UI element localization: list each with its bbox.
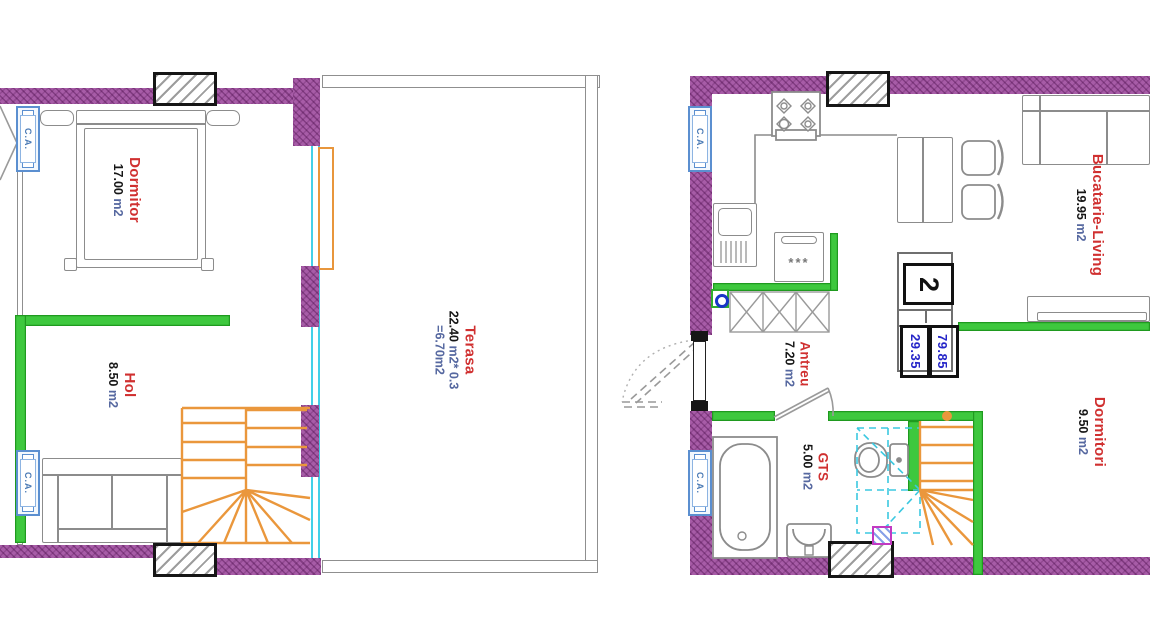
dining-table-divider: [922, 137, 924, 223]
apartment-number: 2: [913, 276, 944, 291]
toilet: [855, 443, 908, 477]
bathroom-sink: [787, 524, 831, 557]
nightstand: [206, 110, 240, 126]
room-label-dormitor: Dormitor 17.00 m2: [111, 157, 143, 223]
wall-green: [712, 411, 775, 421]
badge-area-secondary: 29.35: [909, 334, 924, 369]
radiator-label: C.A.: [0, 473, 59, 493]
chimney-shaft: [828, 541, 894, 578]
wall-segment: [0, 88, 302, 104]
room-label-bucatarie: Bucatarie-Living 19.95 m2: [1074, 154, 1106, 276]
apartment-badge: 2 29.35 79.85: [897, 252, 953, 372]
room-name: Dormitori: [1091, 397, 1109, 467]
room-label-gts: GTS 5.00 m2: [800, 444, 831, 490]
radiator-label: C.A.: [669, 129, 731, 149]
room-area: 9.50: [1077, 409, 1091, 433]
wall-pier: [301, 405, 319, 477]
chimney-shaft: [153, 543, 217, 577]
wall-green: [958, 322, 1150, 331]
stairs: [182, 408, 310, 543]
bed-leg: [201, 258, 214, 271]
chimney-shaft: [826, 71, 890, 107]
wall-segment: [690, 557, 1150, 575]
terasa-wall-right: [585, 75, 598, 573]
room-label-dormitori: Dormitori 9.50 m2: [1076, 397, 1108, 467]
stairs: [920, 411, 973, 545]
sofa-armrest-line: [1039, 95, 1041, 165]
entrance-door-swing: [622, 340, 699, 407]
room-area-unit: m2: [112, 198, 126, 216]
kitchen-counter-line: [755, 135, 897, 203]
wall-green: [908, 421, 920, 491]
room-area-unit: m2: [1075, 223, 1089, 241]
nightstand: [40, 110, 74, 126]
room-label-antreu: Antreu 7.20 m2: [782, 341, 813, 387]
apartment-number-box: 2: [903, 263, 954, 305]
gas-point-ring: [715, 294, 729, 308]
wall-segment: [293, 78, 320, 146]
room-label-hol: Hol 8.50 m2: [106, 362, 138, 408]
room-area: 22.40: [447, 311, 461, 342]
door-frame: [691, 331, 708, 341]
badge-divider: [925, 309, 927, 323]
room-area-unit: m2* 0.3: [447, 345, 461, 389]
bed-headboard-line: [76, 123, 206, 125]
dishwasher-marks: ***: [774, 246, 824, 278]
terasa-wall-bottom: [322, 560, 598, 573]
kitchen-sink-basin: [718, 208, 752, 236]
bathtub: [713, 437, 777, 558]
radiator-label: C.A.: [0, 129, 59, 149]
chimney-shaft: [153, 72, 217, 106]
badge-area-total: 79.85: [936, 334, 951, 369]
room-area: 7.20: [782, 341, 796, 365]
room-name: Bucatarie-Living: [1089, 154, 1107, 276]
gts-door-swing: [774, 388, 833, 420]
room-area-derived: =6.70m2: [431, 311, 446, 390]
kitchen-cabinets: [730, 292, 829, 332]
chair: [962, 140, 1003, 219]
sofa-cushion-divider: [111, 474, 113, 528]
sofa-cushion-divider: [1106, 110, 1108, 165]
dining-table: [897, 137, 953, 223]
radiator-label: C.A.: [669, 473, 731, 493]
terasa-wall-top: [322, 75, 600, 88]
floorplan-canvas: C.A. C.A. Dormitor 17.00 m2 Hol 8.50 m2 …: [0, 0, 1150, 643]
sofa-front-line: [57, 528, 167, 530]
tv-stand-shelf: [1037, 312, 1147, 321]
room-area: 5.00: [800, 444, 814, 468]
wall-pier: [301, 266, 319, 327]
sofa-armrest-line: [166, 474, 168, 543]
wall-green: [973, 411, 983, 575]
stove: [772, 92, 820, 140]
wall-segment: [690, 76, 1150, 94]
wall-green: [15, 315, 230, 326]
sofa-back-line: [1022, 110, 1150, 112]
room-area-unit: m2: [1077, 437, 1091, 455]
gas-point: [711, 289, 729, 308]
room-name: GTS: [814, 444, 830, 490]
room-area-unit: m2: [107, 390, 121, 408]
badge-area-cell: 79.85: [927, 325, 959, 378]
wall-green: [828, 411, 982, 421]
room-area: 17.00: [112, 164, 126, 195]
radiator: C.A.: [688, 106, 712, 172]
room-area: 8.50: [107, 362, 121, 386]
wall-segment: [215, 558, 321, 575]
room-name: Antreu: [796, 341, 812, 387]
wall-segment: [0, 545, 155, 558]
kitchen-counter-edge: [830, 233, 838, 291]
room-name: Terasa: [461, 311, 479, 390]
radiator: C.A.: [688, 450, 712, 516]
kitchen-counter-edge: [713, 283, 838, 291]
room-name: Dormitor: [126, 157, 144, 223]
room-area: 19.95: [1075, 189, 1089, 220]
ventilation-shaft: [872, 526, 892, 545]
dishwasher-handle: [781, 236, 817, 244]
bed-leg: [64, 258, 77, 271]
door-frame: [691, 401, 708, 411]
entrance-door-leaf: [693, 341, 706, 401]
room-name: Hol: [121, 362, 139, 408]
room-label-terasa: Terasa 22.40 m2* 0.3 =6.70m2: [431, 311, 478, 390]
radiator: C.A.: [16, 450, 40, 516]
radiator: C.A.: [16, 106, 40, 172]
room-area-unit: m2: [782, 369, 796, 387]
sliding-door-frame: [318, 147, 334, 270]
room-area-unit: m2: [800, 472, 814, 490]
